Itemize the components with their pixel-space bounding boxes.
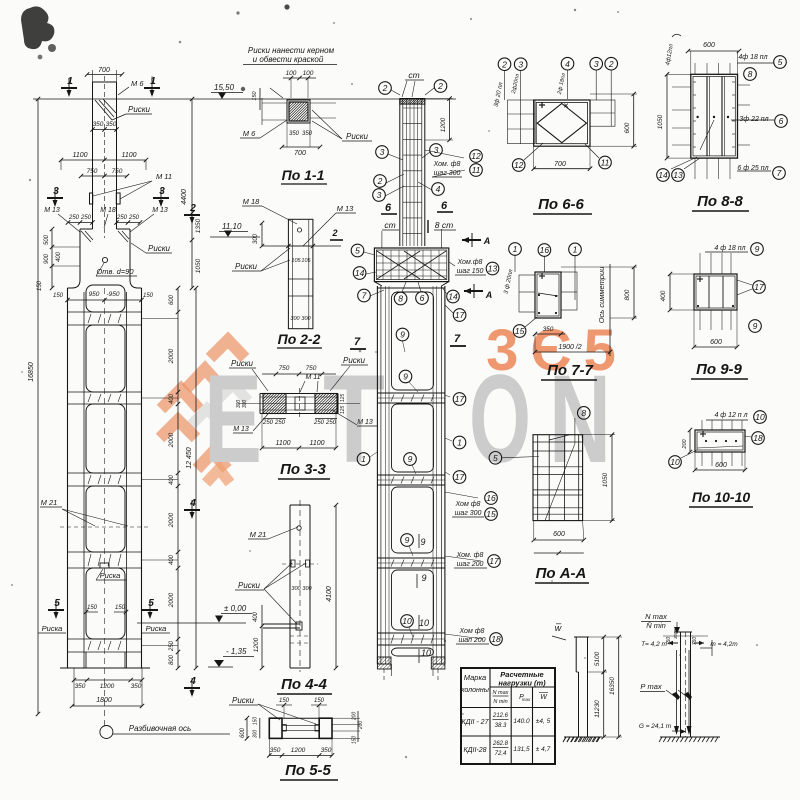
svg-text:750: 750 — [112, 168, 123, 175]
svg-text:7: 7 — [354, 336, 361, 348]
svg-text:М 11: М 11 — [305, 374, 320, 381]
svg-text:750: 750 — [306, 365, 317, 372]
svg-text:Хом ф8: Хом ф8 — [455, 501, 481, 508]
svg-text:105: 105 — [301, 258, 311, 264]
svg-text:600: 600 — [710, 339, 722, 346]
svg-text:Риски: Риски — [232, 696, 255, 705]
svg-text:700: 700 — [554, 161, 566, 168]
svg-text:6: 6 — [420, 293, 425, 303]
svg-text:8: 8 — [748, 69, 753, 79]
svg-text:Риски: Риски — [238, 581, 261, 590]
svg-text:600: 600 — [240, 727, 246, 738]
svg-text:700: 700 — [294, 150, 306, 157]
svg-text:Риски нанести керном: Риски нанести керном — [248, 46, 335, 55]
svg-text:350: 350 — [543, 326, 554, 333]
svg-text:600: 600 — [553, 531, 565, 538]
svg-text:max: max — [522, 697, 531, 702]
svg-text:900: 900 — [44, 253, 50, 264]
svg-text:5: 5 — [54, 598, 60, 609]
svg-text:2000: 2000 — [168, 512, 175, 528]
svg-text:400: 400 — [169, 554, 175, 565]
svg-text:4 ф 18 пл: 4 ф 18 пл — [714, 245, 745, 252]
svg-text:300: 300 — [290, 316, 300, 322]
svg-text:800: 800 — [624, 289, 631, 300]
svg-text:и обвести краской: и обвести краской — [253, 55, 324, 64]
svg-text:По 3-3: По 3-3 — [280, 461, 326, 478]
svg-text:9: 9 — [755, 244, 760, 254]
svg-text:Разбивочная ось: Разбивочная ось — [129, 724, 191, 733]
svg-text:Т= 4,2 т: Т= 4,2 т — [641, 641, 667, 648]
svg-text:М 13: М 13 — [44, 207, 60, 214]
svg-text:400: 400 — [253, 611, 259, 622]
svg-text:2: 2 — [331, 228, 337, 238]
svg-text:17: 17 — [754, 282, 764, 292]
svg-text:1: 1 — [150, 76, 156, 87]
svg-text:10: 10 — [421, 648, 431, 658]
svg-text:11230: 11230 — [594, 700, 601, 718]
svg-text:15,50: 15,50 — [214, 83, 235, 92]
svg-text:150: 150 — [53, 293, 64, 299]
svg-text:Отв. d=90: Отв. d=90 — [96, 267, 134, 276]
svg-text:14: 14 — [448, 292, 458, 302]
svg-text:КДII - 27: КДII - 27 — [462, 719, 490, 726]
svg-text:шаг 200: шаг 200 — [457, 561, 484, 568]
svg-text:т = 4,2т: т = 4,2т — [710, 641, 738, 648]
svg-text:3: 3 — [377, 190, 382, 200]
svg-text:400: 400 — [169, 393, 175, 404]
svg-text:9: 9 — [408, 454, 413, 464]
svg-text:6: 6 — [441, 200, 448, 212]
svg-text:1100: 1100 — [72, 152, 87, 159]
svg-text:1800: 1800 — [96, 697, 112, 704]
svg-text:Риски: Риски — [235, 262, 258, 271]
svg-text:150: 150 — [143, 293, 154, 299]
svg-text:Риска: Риска — [100, 571, 121, 580]
svg-text:А: А — [485, 290, 493, 300]
svg-text:150: 150 — [253, 717, 259, 726]
svg-text:6: 6 — [385, 202, 392, 214]
svg-text:150: 150 — [314, 698, 325, 704]
svg-text:9: 9 — [403, 372, 408, 382]
svg-text:12: 12 — [514, 160, 524, 170]
svg-text:4ф 18 пл: 4ф 18 пл — [738, 54, 767, 61]
svg-text:М 18: М 18 — [100, 207, 116, 214]
svg-text:11: 11 — [601, 158, 610, 168]
svg-text:7: 7 — [362, 291, 367, 301]
svg-text:3: 3 — [380, 147, 385, 157]
svg-text:Ось симметрии: Ось симметрии — [597, 266, 606, 323]
svg-text:350: 350 — [321, 747, 332, 754]
svg-text:По 9-9: По 9-9 — [696, 361, 742, 378]
svg-text:1050: 1050 — [195, 258, 202, 273]
svg-text:5100: 5100 — [594, 651, 601, 666]
svg-text:1200: 1200 — [253, 637, 260, 652]
svg-text:3: 3 — [159, 186, 165, 197]
svg-text:350: 350 — [302, 131, 313, 137]
svg-text:17: 17 — [455, 394, 465, 404]
svg-text:Риски: Риски — [231, 359, 254, 368]
svg-text:1200: 1200 — [291, 747, 306, 754]
svg-text:2: 2 — [437, 81, 443, 91]
svg-text:125: 125 — [340, 406, 346, 415]
svg-text:11: 11 — [472, 165, 481, 175]
svg-text:По 1-1: По 1-1 — [282, 167, 325, 183]
svg-text:1050: 1050 — [657, 114, 664, 129]
svg-text:1100: 1100 — [275, 440, 290, 447]
svg-text:38.3: 38.3 — [495, 723, 507, 729]
svg-text:150: 150 — [115, 605, 126, 611]
svg-text:400: 400 — [660, 290, 667, 301]
svg-text:300: 300 — [291, 586, 301, 592]
svg-text:8 ст: 8 ст — [435, 220, 453, 230]
svg-text:1200: 1200 — [440, 117, 447, 132]
svg-text:4: 4 — [436, 184, 441, 194]
svg-text:12 450: 12 450 — [186, 447, 193, 469]
svg-text:1900 /2: 1900 /2 — [558, 344, 581, 351]
svg-text:1100: 1100 — [309, 440, 324, 447]
svg-text:Риска: Риска — [146, 624, 167, 633]
svg-text:10: 10 — [419, 618, 429, 628]
svg-text:131,5: 131,5 — [513, 746, 530, 753]
svg-text:3: 3 — [434, 145, 439, 155]
svg-text:140.0: 140.0 — [513, 718, 530, 725]
svg-text:10: 10 — [402, 616, 412, 626]
svg-text:14: 14 — [355, 268, 365, 278]
svg-text:17: 17 — [455, 472, 465, 482]
svg-text:По 10-10: По 10-10 — [692, 489, 751, 505]
svg-text:Хом.ф8: Хом.ф8 — [457, 259, 483, 266]
svg-text:16850: 16850 — [28, 362, 35, 382]
svg-text:18: 18 — [491, 634, 501, 644]
svg-text:5: 5 — [778, 57, 783, 67]
svg-text:N̄ min: N̄ min — [646, 621, 666, 630]
svg-text:750: 750 — [692, 637, 698, 646]
svg-text:8: 8 — [581, 408, 586, 418]
svg-text:350: 350 — [270, 747, 281, 754]
svg-text:2: 2 — [382, 83, 388, 93]
svg-text:ст: ст — [384, 220, 395, 230]
svg-text:1: 1 — [361, 454, 366, 464]
svg-text:Р mах: Р mах — [640, 682, 662, 691]
svg-text:4: 4 — [565, 59, 570, 69]
svg-text:9: 9 — [421, 573, 426, 583]
svg-text:3000: 3000 — [673, 628, 678, 639]
svg-text:350: 350 — [106, 121, 117, 128]
svg-text:5: 5 — [355, 246, 360, 256]
svg-text:17: 17 — [455, 310, 465, 320]
svg-text:700: 700 — [98, 67, 110, 74]
svg-text:350: 350 — [93, 121, 104, 128]
svg-text:шаг 150: шаг 150 — [457, 268, 484, 275]
svg-text:КДII-28: КДII-28 — [463, 747, 486, 754]
svg-text:шап 200: шап 200 — [458, 637, 485, 644]
svg-text:±4, 5: ±4, 5 — [536, 718, 551, 725]
svg-text:600: 600 — [624, 122, 631, 133]
svg-text:750: 750 — [87, 168, 98, 175]
svg-text:200: 200 — [682, 438, 688, 449]
svg-text:М 13: М 13 — [152, 207, 168, 214]
svg-text:350: 350 — [131, 683, 142, 690]
svg-text:10: 10 — [670, 457, 680, 467]
svg-text:Хом ф8: Хом ф8 — [459, 628, 485, 635]
svg-text:150: 150 — [252, 90, 258, 100]
svg-text:18: 18 — [753, 433, 763, 443]
svg-text:Хом. ф8: Хом. ф8 — [433, 161, 461, 168]
svg-text:М 18: М 18 — [243, 197, 261, 206]
svg-text:По А-А: По А-А — [536, 565, 587, 582]
svg-text:Риски: Риски — [343, 356, 366, 365]
svg-text:М 6: М 6 — [131, 79, 144, 88]
svg-text:По 6-6: По 6-6 — [538, 196, 584, 213]
svg-text:250: 250 — [274, 420, 286, 426]
svg-text:8: 8 — [398, 294, 403, 304]
svg-text:16: 16 — [486, 493, 496, 503]
svg-text:400: 400 — [169, 474, 175, 485]
svg-text:100: 100 — [303, 70, 314, 77]
svg-text:200: 200 — [358, 721, 364, 731]
svg-text:600: 600 — [703, 42, 715, 49]
svg-text:2000: 2000 — [168, 592, 175, 608]
svg-text:9: 9 — [405, 535, 410, 545]
svg-text:300: 300 — [253, 730, 259, 739]
svg-text:2000: 2000 — [168, 432, 175, 448]
svg-text:4: 4 — [189, 498, 196, 509]
svg-text:7: 7 — [777, 168, 782, 178]
svg-text:300: 300 — [242, 400, 248, 409]
svg-text:200: 200 — [351, 712, 357, 722]
svg-text:1: 1 — [513, 244, 518, 254]
svg-text:4: 4 — [189, 676, 196, 687]
svg-text:-950: -950 — [106, 291, 119, 298]
svg-text:М 21: М 21 — [250, 530, 267, 539]
svg-text:4100: 4100 — [326, 586, 333, 602]
svg-text:11,10: 11,10 — [222, 222, 242, 231]
svg-text:N max: N max — [645, 612, 667, 621]
svg-text:± 0,00: ± 0,00 — [224, 604, 247, 613]
svg-text:5: 5 — [148, 598, 154, 609]
svg-text:Марка: Марка — [464, 673, 486, 682]
svg-text:72,4: 72,4 — [495, 751, 507, 757]
svg-text:3: 3 — [594, 59, 599, 69]
svg-text:13: 13 — [488, 264, 498, 274]
svg-text:9: 9 — [753, 321, 758, 331]
svg-text:4400: 4400 — [181, 189, 188, 205]
svg-text:125: 125 — [340, 394, 346, 403]
svg-text:1: 1 — [457, 438, 462, 448]
svg-text:Риски: Риски — [128, 105, 151, 114]
svg-text:w̅: w̅ — [555, 623, 562, 633]
svg-text:1100: 1100 — [121, 152, 136, 159]
svg-text:100: 100 — [286, 70, 297, 77]
svg-text:13: 13 — [673, 170, 683, 180]
svg-text:400: 400 — [56, 251, 62, 262]
svg-text:2: 2 — [377, 176, 383, 186]
svg-text:2: 2 — [608, 59, 614, 69]
svg-text:6: 6 — [779, 116, 784, 126]
svg-text:9: 9 — [420, 537, 425, 547]
svg-text:3ф 22 пл: 3ф 22 пл — [739, 116, 768, 123]
svg-text:Риски: Риски — [148, 244, 171, 253]
svg-text:17: 17 — [489, 556, 499, 566]
svg-text:шаг 300: шаг 300 — [455, 510, 482, 517]
svg-text:950: 950 — [89, 291, 100, 298]
svg-text:500: 500 — [44, 234, 50, 245]
svg-text:- 1,35: - 1,35 — [226, 647, 247, 656]
svg-text:N min: N min — [493, 699, 507, 705]
svg-text:9: 9 — [400, 330, 405, 340]
svg-text:250: 250 — [325, 420, 337, 426]
svg-text:4 ф 12 п л: 4 ф 12 п л — [714, 412, 747, 419]
svg-text:М 13: М 13 — [233, 426, 249, 433]
svg-text:А: А — [483, 236, 491, 246]
svg-text:G = 24,1 т: G = 24,1 т — [639, 723, 672, 730]
svg-text:12: 12 — [471, 151, 481, 161]
svg-text:2000: 2000 — [168, 348, 175, 364]
svg-text:5: 5 — [493, 453, 498, 463]
svg-text:10: 10 — [755, 412, 765, 422]
svg-text:300: 300 — [302, 586, 312, 592]
svg-text:1350: 1350 — [195, 218, 202, 233]
svg-text:3: 3 — [53, 186, 59, 197]
svg-text:212.6: 212.6 — [492, 713, 509, 719]
svg-text:ст: ст — [408, 70, 419, 80]
svg-text:По 5-5: По 5-5 — [285, 762, 331, 779]
svg-text:По 2-2: По 2-2 — [278, 331, 321, 347]
svg-text:Риски: Риски — [346, 132, 369, 141]
svg-text:М 11: М 11 — [156, 172, 172, 181]
svg-text:16350: 16350 — [609, 677, 616, 695]
svg-text:14: 14 — [658, 170, 668, 180]
svg-text:250: 250 — [116, 215, 128, 221]
svg-text:М 13: М 13 — [337, 204, 355, 213]
svg-text:300: 300 — [253, 233, 259, 244]
svg-text:250: 250 — [169, 640, 175, 652]
svg-text:М 6: М 6 — [243, 129, 256, 138]
svg-text:1: 1 — [573, 245, 578, 255]
svg-text:150: 150 — [87, 605, 98, 611]
svg-text:нагрузки (т): нагрузки (т) — [498, 679, 546, 688]
svg-text:300: 300 — [301, 316, 311, 322]
svg-text:По 7-7: По 7-7 — [547, 362, 593, 379]
svg-text:600: 600 — [715, 462, 727, 469]
svg-text:750: 750 — [666, 637, 672, 646]
svg-text:2: 2 — [501, 59, 507, 69]
svg-text:3: 3 — [518, 59, 523, 69]
svg-text:N max: N max — [493, 690, 509, 696]
svg-text:± 4,7: ± 4,7 — [536, 746, 551, 753]
svg-text:По 8-8: По 8-8 — [697, 193, 743, 210]
svg-text:250: 250 — [262, 420, 274, 426]
svg-text:350: 350 — [289, 131, 300, 137]
svg-text:750: 750 — [279, 365, 290, 372]
svg-text:Риска: Риска — [42, 624, 63, 633]
svg-text:1200: 1200 — [100, 683, 115, 690]
svg-text:150: 150 — [279, 698, 290, 704]
svg-text:1050: 1050 — [602, 472, 609, 487]
svg-text:350: 350 — [75, 683, 86, 690]
svg-text:262.8: 262.8 — [492, 741, 509, 747]
svg-text:800: 800 — [169, 654, 175, 665]
svg-text:7: 7 — [454, 333, 461, 345]
svg-text:колонны: колонны — [461, 687, 490, 694]
svg-text:250: 250 — [313, 420, 325, 426]
svg-text:1: 1 — [67, 76, 73, 87]
svg-text:150: 150 — [351, 736, 357, 745]
svg-text:М 13: М 13 — [357, 419, 373, 426]
svg-text:По 4-4: По 4-4 — [281, 676, 327, 693]
svg-text:15: 15 — [515, 326, 525, 336]
svg-text:105: 105 — [291, 258, 301, 264]
svg-text:✕: ✕ — [563, 103, 569, 110]
svg-text:600: 600 — [169, 294, 175, 305]
svg-text:15: 15 — [486, 509, 496, 519]
svg-text:М 21: М 21 — [41, 498, 58, 507]
svg-text:16: 16 — [540, 245, 550, 255]
